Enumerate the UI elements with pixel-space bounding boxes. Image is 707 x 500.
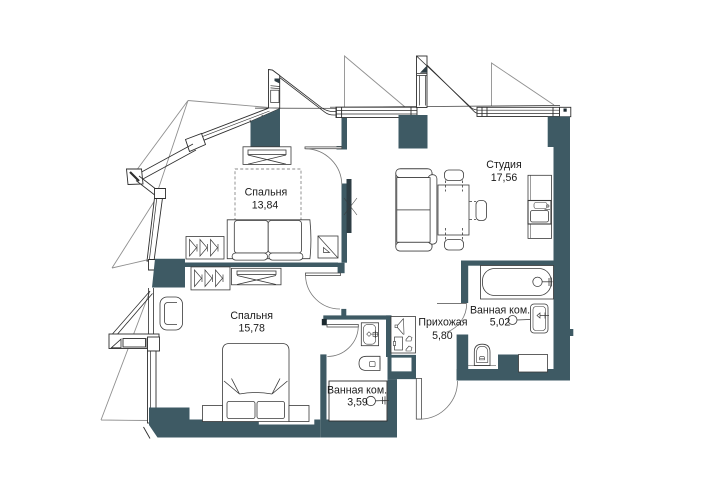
svg-text:Ванная ком.: Ванная ком.: [327, 384, 387, 396]
svg-text:Ванная ком.: Ванная ком.: [470, 305, 530, 317]
svg-text:5,80: 5,80: [432, 330, 453, 342]
svg-text:3,59: 3,59: [347, 397, 368, 409]
svg-text:Спальня: Спальня: [230, 310, 273, 322]
svg-text:Прихожая: Прихожая: [418, 317, 467, 329]
svg-text:13,84: 13,84: [252, 200, 279, 212]
svg-text:Спальня: Спальня: [245, 187, 288, 199]
svg-text:17,56: 17,56: [491, 172, 518, 184]
svg-text:5,02: 5,02: [490, 317, 511, 329]
svg-text:Студия: Студия: [486, 159, 521, 171]
svg-text:15,78: 15,78: [238, 322, 265, 334]
